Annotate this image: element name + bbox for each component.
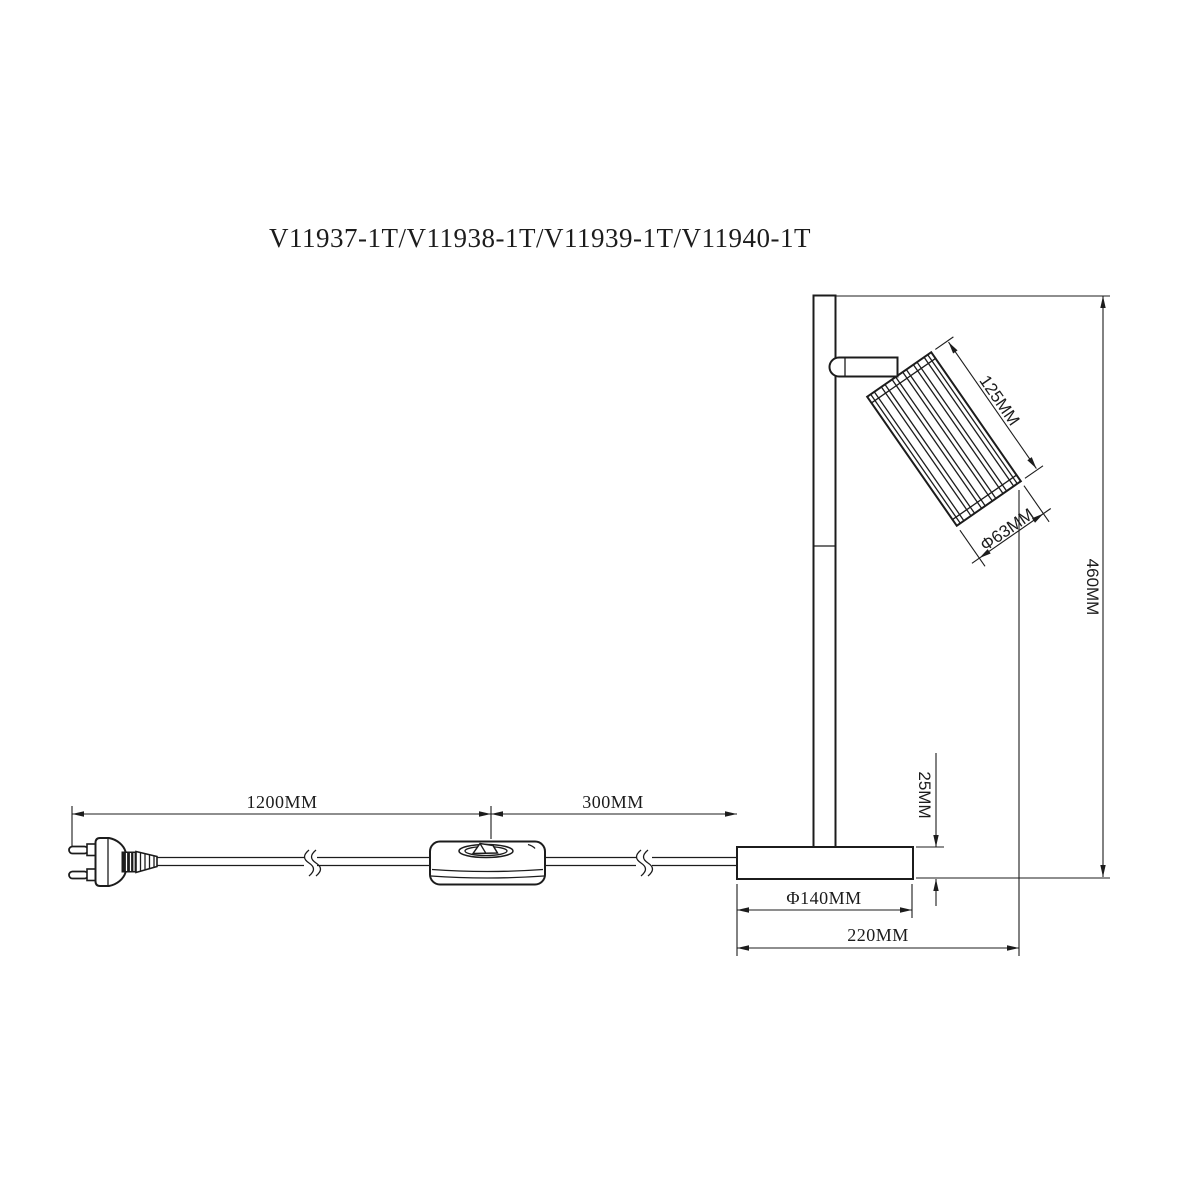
lamp-arm [830,358,898,377]
lamp-pole [814,296,836,848]
plug-pin [69,872,88,879]
dim-base-height-label: 25MM [915,771,934,818]
dim-base-height: 25MM [915,753,944,906]
dim-overall-height-label: 460MM [1083,559,1102,616]
cord-break-symbol [305,850,321,876]
cord-break-symbol [637,850,653,876]
plug-pin [69,847,88,854]
inline-switch [430,842,545,885]
dim-shade-diameter-label: Φ63MM [977,505,1038,555]
dim-overall-depth-label: 220MM [847,925,909,945]
drawing-title: V11937-1T/V11938-1T/V11939-1T/V11940-1T [269,223,811,253]
dim-shade-length-label: 125MM [975,372,1023,429]
dim-overall-height: 460MM [836,296,1110,878]
power-plug [69,838,157,886]
dim-cord-length: 1200MM [72,792,491,846]
dim-cord-length-label: 1200MM [246,792,317,812]
dim-base-diameter-label: Φ140MM [786,888,861,908]
dim-base-diameter: Φ140MM [737,884,912,956]
lamp-base [737,847,913,879]
dim-switch-to-base: 300MM [491,792,737,839]
technical-drawing: V11937-1T/V11938-1T/V11939-1T/V11940-1T … [0,0,1200,1200]
dim-switch-to-base-label: 300MM [582,792,644,812]
plug-body [96,838,126,886]
drawing-page: V11937-1T/V11938-1T/V11939-1T/V11940-1T … [0,0,1200,1200]
